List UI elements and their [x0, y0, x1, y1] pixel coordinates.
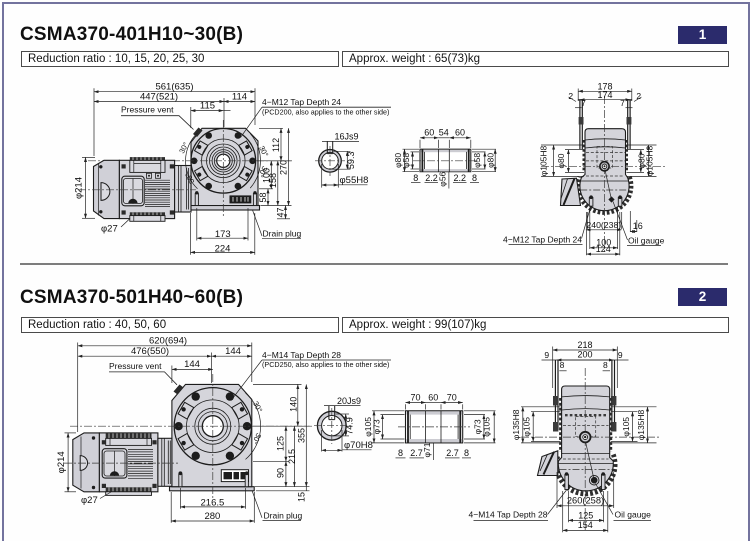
svg-text:114: 114 — [232, 91, 247, 102]
svg-text:8: 8 — [603, 360, 608, 370]
svg-text:φ135H8: φ135H8 — [511, 409, 521, 440]
svg-text:260(258): 260(258) — [567, 496, 604, 506]
svg-text:115: 115 — [200, 100, 215, 111]
svg-text:φ105: φ105 — [481, 417, 491, 437]
svg-text:2.2: 2.2 — [454, 173, 467, 183]
svg-text:(PCD200, also applies to the o: (PCD200, also applies to the other side) — [262, 107, 389, 116]
svg-text:30°: 30° — [251, 400, 264, 414]
svg-text:2: 2 — [636, 91, 641, 101]
svg-text:φ105H8: φ105H8 — [645, 145, 655, 176]
svg-text:φ58: φ58 — [401, 153, 411, 168]
svg-text:54: 54 — [439, 128, 449, 138]
svg-text:φ105H8: φ105H8 — [539, 145, 549, 176]
svg-text:144: 144 — [225, 346, 241, 357]
svg-text:7: 7 — [581, 98, 586, 108]
svg-text:φ56: φ56 — [437, 171, 447, 186]
svg-text:4−M12 Tap Depth 24: 4−M12 Tap Depth 24 — [262, 97, 341, 107]
svg-text:173: 173 — [215, 229, 231, 240]
svg-text:355: 355 — [296, 428, 306, 443]
svg-text:2.2: 2.2 — [425, 173, 438, 183]
svg-text:φ135H8: φ135H8 — [636, 409, 646, 440]
svg-text:φ105: φ105 — [521, 417, 531, 437]
svg-text:4−M14 Tap Depth 28: 4−M14 Tap Depth 28 — [469, 510, 548, 520]
svg-text:2.7: 2.7 — [446, 448, 459, 458]
svg-text:9: 9 — [544, 350, 549, 360]
svg-text:φ80: φ80 — [486, 153, 496, 168]
svg-text:59.3: 59.3 — [346, 152, 356, 170]
svg-text:74.9: 74.9 — [344, 417, 354, 435]
svg-text:30°: 30° — [177, 141, 190, 155]
svg-text:70: 70 — [410, 392, 420, 402]
svg-text:Drain plug: Drain plug — [263, 229, 302, 239]
svg-text:476(550): 476(550) — [131, 346, 169, 357]
svg-text:Pressure vent: Pressure vent — [121, 105, 174, 115]
svg-text:φ214: φ214 — [74, 177, 85, 199]
svg-text:200: 200 — [577, 350, 592, 360]
svg-text:Pressure vent: Pressure vent — [109, 361, 162, 371]
svg-text:8: 8 — [560, 360, 565, 370]
svg-text:φ105: φ105 — [621, 417, 631, 437]
svg-text:140: 140 — [288, 397, 298, 412]
svg-text:224: 224 — [215, 243, 231, 254]
svg-text:8: 8 — [398, 448, 403, 458]
svg-text:30°: 30° — [257, 144, 270, 158]
svg-text:174: 174 — [597, 90, 612, 100]
svg-text:47: 47 — [275, 207, 285, 217]
svg-text:144: 144 — [184, 359, 200, 370]
svg-text:7: 7 — [620, 98, 625, 108]
svg-text:270: 270 — [279, 160, 289, 175]
svg-text:8: 8 — [472, 173, 477, 183]
svg-text:16Js9: 16Js9 — [335, 132, 359, 142]
svg-text:16: 16 — [633, 221, 643, 231]
svg-text:58: 58 — [258, 192, 268, 202]
svg-text:4−M12 Tap Depth 24: 4−M12 Tap Depth 24 — [503, 235, 582, 245]
svg-text:φ70H8: φ70H8 — [344, 440, 373, 451]
svg-text:124: 124 — [596, 244, 611, 254]
svg-text:φ55H8: φ55H8 — [340, 175, 369, 186]
svg-text:Oil gauge: Oil gauge — [628, 236, 665, 246]
svg-text:447(521): 447(521) — [140, 91, 178, 102]
svg-text:20Js9: 20Js9 — [337, 396, 361, 406]
svg-text:φ58: φ58 — [472, 153, 482, 168]
svg-text:154: 154 — [578, 520, 593, 530]
svg-text:9: 9 — [618, 350, 623, 360]
svg-text:112: 112 — [271, 138, 281, 152]
svg-text:φ80: φ80 — [556, 153, 566, 168]
svg-text:125: 125 — [276, 436, 286, 451]
svg-text:φ27: φ27 — [81, 495, 98, 506]
svg-text:8: 8 — [464, 448, 469, 458]
svg-text:60: 60 — [455, 128, 465, 138]
svg-text:60: 60 — [424, 128, 434, 138]
svg-text:90: 90 — [276, 468, 286, 478]
svg-text:2: 2 — [568, 91, 573, 101]
svg-text:(PCD250, also applies to the o: (PCD250, also applies to the other side) — [262, 360, 389, 369]
svg-text:8: 8 — [413, 173, 418, 183]
svg-text:2.7: 2.7 — [410, 448, 423, 458]
svg-text:125: 125 — [578, 510, 593, 520]
svg-text:φ73: φ73 — [371, 419, 381, 434]
svg-text:240(238): 240(238) — [586, 220, 621, 230]
svg-text:70: 70 — [447, 392, 457, 402]
svg-text:φ214: φ214 — [56, 451, 67, 473]
svg-text:218: 218 — [577, 340, 592, 350]
svg-text:215: 215 — [287, 449, 297, 464]
svg-text:4−M14 Tap Depth 28: 4−M14 Tap Depth 28 — [262, 350, 341, 360]
svg-text:Oil gauge: Oil gauge — [615, 510, 652, 520]
svg-text:60: 60 — [428, 392, 438, 402]
svg-text:100: 100 — [261, 168, 271, 183]
svg-text:216.5: 216.5 — [201, 497, 225, 508]
svg-text:Drain plug: Drain plug — [264, 511, 303, 521]
svg-text:15: 15 — [296, 492, 306, 502]
svg-text:280: 280 — [204, 511, 220, 522]
svg-text:φ71: φ71 — [422, 442, 432, 457]
svg-text:φ27: φ27 — [101, 224, 118, 235]
